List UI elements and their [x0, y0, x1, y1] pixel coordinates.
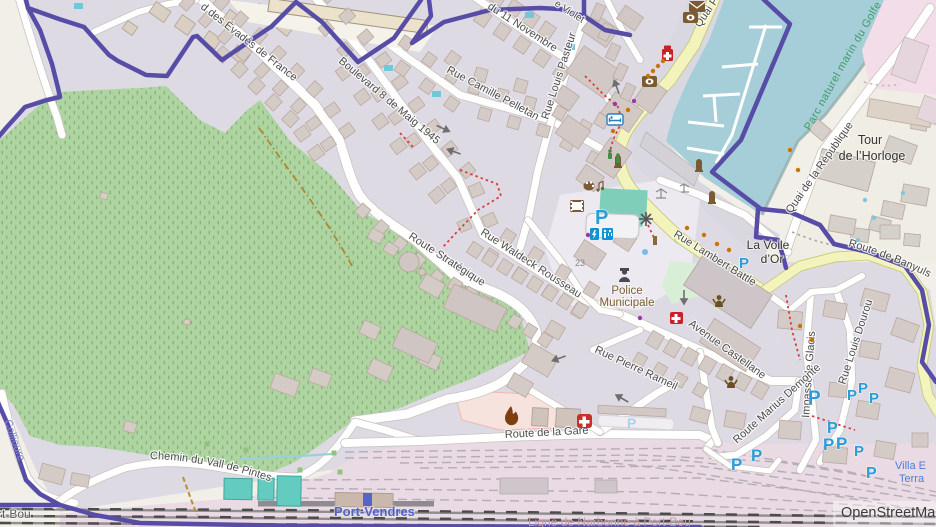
- svg-text:OpenStreetMap: OpenStreetMap: [841, 505, 936, 521]
- svg-text:de l’Horloge: de l’Horloge: [839, 149, 906, 163]
- svg-text:23: 23: [575, 258, 585, 268]
- svg-text:Ligne de Narbonne à Port-Bou: Ligne de Narbonne à Port-Bou: [528, 515, 691, 527]
- svg-text:La Voile: La Voile: [747, 238, 790, 252]
- svg-text:P: P: [858, 380, 868, 397]
- svg-text:Tour: Tour: [858, 133, 882, 147]
- svg-text:rt-Bou: rt-Bou: [0, 507, 31, 521]
- svg-text:P: P: [866, 465, 877, 482]
- svg-text:Port-Vendres: Port-Vendres: [334, 504, 415, 519]
- svg-text:Terra: Terra: [899, 473, 925, 485]
- svg-text:P: P: [595, 207, 608, 229]
- svg-text:P: P: [751, 446, 762, 465]
- svg-text:P: P: [731, 455, 742, 474]
- svg-text:P: P: [823, 435, 834, 454]
- svg-text:Police: Police: [611, 285, 642, 297]
- svg-text:P: P: [627, 415, 636, 431]
- svg-text:P: P: [739, 255, 749, 272]
- svg-text:P: P: [854, 443, 864, 460]
- svg-text:Villa E: Villa E: [895, 460, 926, 472]
- svg-text:Municipale: Municipale: [600, 297, 655, 309]
- svg-text:P: P: [869, 390, 879, 407]
- svg-text:P: P: [847, 387, 857, 404]
- svg-text:d’Or: d’Or: [761, 252, 784, 266]
- svg-text:P: P: [836, 434, 847, 453]
- svg-text:P: P: [808, 388, 821, 409]
